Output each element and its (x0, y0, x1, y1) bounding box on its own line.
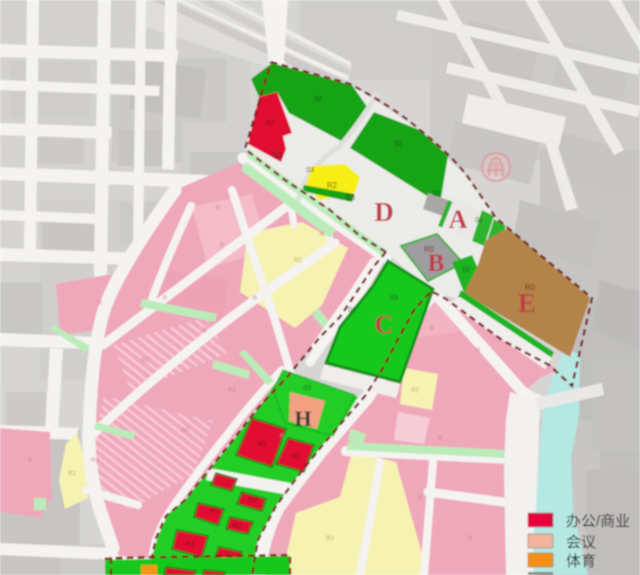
svg-text:R2: R2 (294, 258, 302, 264)
svg-text:01: 01 (475, 217, 483, 224)
svg-text:R2: R2 (91, 458, 99, 464)
svg-text:R: R (28, 458, 33, 464)
svg-text:01: 01 (433, 191, 441, 198)
svg-text:R2: R2 (68, 471, 76, 477)
svg-text:R: R (430, 326, 435, 332)
svg-text:办公/商业: 办公/商业 (566, 513, 630, 530)
svg-text:R: R (438, 436, 443, 442)
svg-text:R: R (253, 296, 258, 302)
svg-text:03: 03 (303, 385, 311, 392)
svg-text:R: R (203, 328, 208, 334)
svg-text:R2: R2 (292, 453, 301, 460)
svg-text:R2: R2 (327, 181, 338, 190)
svg-text:02: 02 (462, 267, 470, 274)
svg-text:R: R (220, 243, 225, 249)
svg-text:R2: R2 (411, 388, 419, 394)
svg-text:A: A (449, 205, 468, 234)
svg-text:R: R (216, 206, 221, 212)
svg-text:R2: R2 (249, 497, 258, 504)
svg-text:R: R (98, 301, 103, 307)
svg-text:R2: R2 (233, 523, 242, 530)
svg-text:R: R (280, 434, 285, 440)
svg-text:E: E (518, 288, 536, 318)
svg-text:R2: R2 (186, 541, 195, 548)
svg-text:C: C (375, 310, 394, 339)
svg-text:R: R (418, 496, 423, 502)
svg-text:03: 03 (390, 295, 398, 302)
svg-text:R: R (320, 232, 325, 238)
svg-text:03: 03 (306, 167, 314, 174)
svg-text:R2: R2 (326, 536, 334, 542)
svg-text:R2: R2 (266, 120, 275, 127)
svg-text:R2: R2 (228, 388, 236, 394)
svg-text:01: 01 (348, 307, 356, 314)
svg-text:R0: R0 (525, 283, 536, 292)
svg-text:R2: R2 (181, 428, 189, 434)
svg-text:D: D (374, 197, 394, 227)
svg-text:体育: 体育 (566, 553, 596, 570)
svg-text:S3: S3 (272, 151, 282, 160)
svg-text:B: B (428, 250, 445, 277)
svg-text:R: R (468, 536, 473, 542)
svg-text:02: 02 (394, 141, 402, 148)
svg-text:S3: S3 (345, 193, 355, 202)
svg-text:R2: R2 (211, 508, 220, 515)
svg-text:R2: R2 (258, 441, 267, 448)
svg-text:R: R (163, 296, 168, 302)
svg-text:会议: 会议 (566, 534, 596, 551)
svg-text:02: 02 (314, 96, 322, 103)
svg-text:R0: R0 (424, 245, 435, 254)
svg-text:R: R (476, 348, 481, 354)
svg-text:H: H (294, 406, 311, 431)
svg-text:R2: R2 (141, 358, 149, 364)
